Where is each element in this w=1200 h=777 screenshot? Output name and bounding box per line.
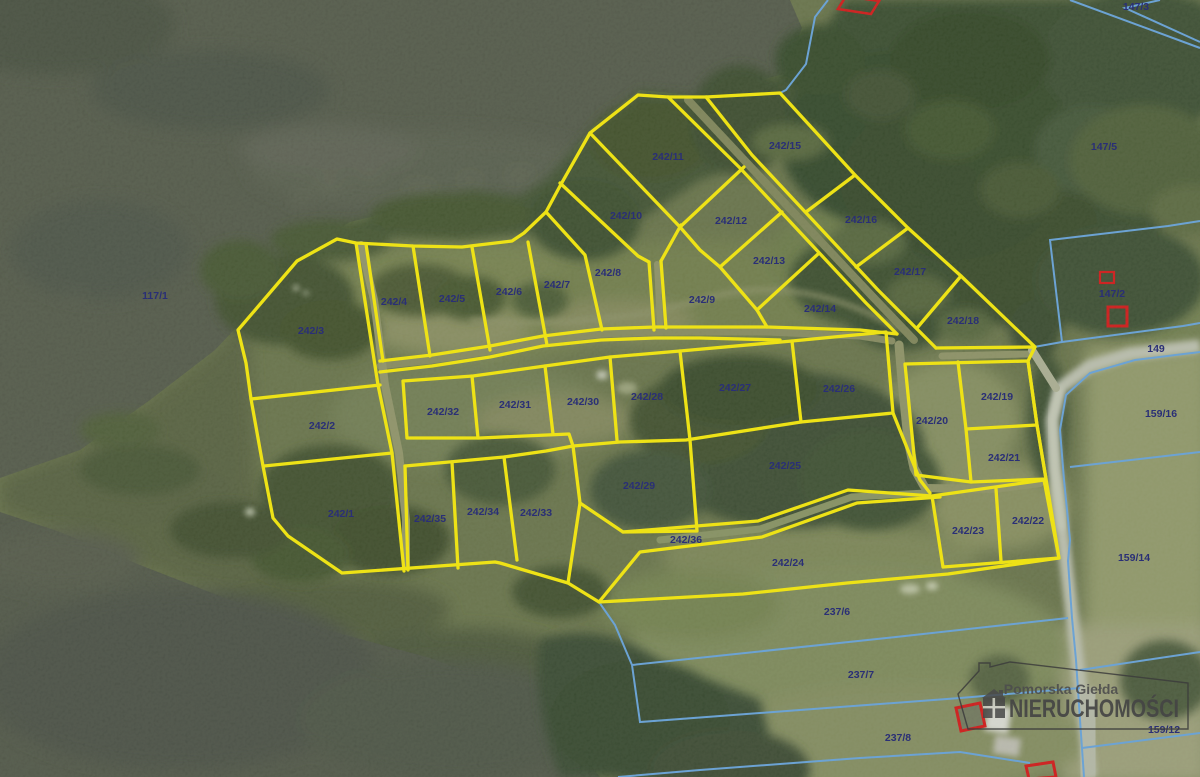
svg-text:242/20: 242/20 (916, 415, 948, 427)
svg-text:242/8: 242/8 (595, 267, 621, 279)
svg-text:242/27: 242/27 (719, 382, 751, 394)
svg-text:242/3: 242/3 (298, 325, 324, 337)
svg-text:159/16: 159/16 (1145, 408, 1177, 420)
svg-text:242/9: 242/9 (689, 294, 715, 306)
svg-text:159/14: 159/14 (1118, 552, 1150, 564)
svg-text:147/3: 147/3 (1123, 1, 1149, 13)
svg-text:242/33: 242/33 (520, 507, 552, 519)
svg-text:237/8: 237/8 (885, 732, 911, 744)
svg-text:242/15: 242/15 (769, 140, 801, 152)
svg-text:242/17: 242/17 (894, 266, 926, 278)
svg-text:149: 149 (1147, 343, 1165, 355)
svg-text:117/1: 117/1 (142, 290, 168, 302)
svg-text:242/12: 242/12 (715, 215, 747, 227)
svg-text:147/5: 147/5 (1091, 141, 1117, 153)
svg-text:242/14: 242/14 (804, 303, 836, 315)
svg-text:242/31: 242/31 (499, 399, 531, 411)
svg-text:147/2: 147/2 (1099, 288, 1125, 300)
svg-text:242/25: 242/25 (769, 460, 801, 472)
svg-text:242/28: 242/28 (631, 391, 663, 403)
svg-text:242/24: 242/24 (772, 557, 804, 569)
svg-text:242/32: 242/32 (427, 406, 459, 418)
svg-text:242/26: 242/26 (823, 383, 855, 395)
svg-text:242/6: 242/6 (496, 286, 522, 298)
svg-text:237/7: 237/7 (848, 669, 874, 681)
svg-text:242/1: 242/1 (328, 508, 354, 520)
svg-text:242/30: 242/30 (567, 396, 599, 408)
svg-text:NIERUCHOMOŚCI: NIERUCHOMOŚCI (1009, 693, 1179, 723)
svg-text:242/18: 242/18 (947, 315, 979, 327)
svg-text:242/16: 242/16 (845, 214, 877, 226)
svg-text:242/35: 242/35 (414, 513, 446, 525)
svg-text:242/19: 242/19 (981, 391, 1013, 403)
svg-text:237/6: 237/6 (824, 606, 850, 618)
svg-text:242/36: 242/36 (670, 534, 702, 546)
svg-text:242/4: 242/4 (381, 296, 407, 308)
svg-text:242/13: 242/13 (753, 255, 785, 267)
svg-text:242/5: 242/5 (439, 293, 465, 305)
svg-text:242/7: 242/7 (544, 279, 570, 291)
svg-text:242/11: 242/11 (652, 151, 684, 163)
svg-text:242/23: 242/23 (952, 525, 984, 537)
svg-text:242/22: 242/22 (1012, 515, 1044, 527)
svg-text:242/10: 242/10 (610, 210, 642, 222)
svg-text:242/29: 242/29 (623, 480, 655, 492)
svg-text:242/2: 242/2 (309, 420, 335, 432)
svg-text:159/12: 159/12 (1148, 724, 1180, 736)
svg-text:242/21: 242/21 (988, 452, 1020, 464)
svg-text:242/34: 242/34 (467, 506, 499, 518)
